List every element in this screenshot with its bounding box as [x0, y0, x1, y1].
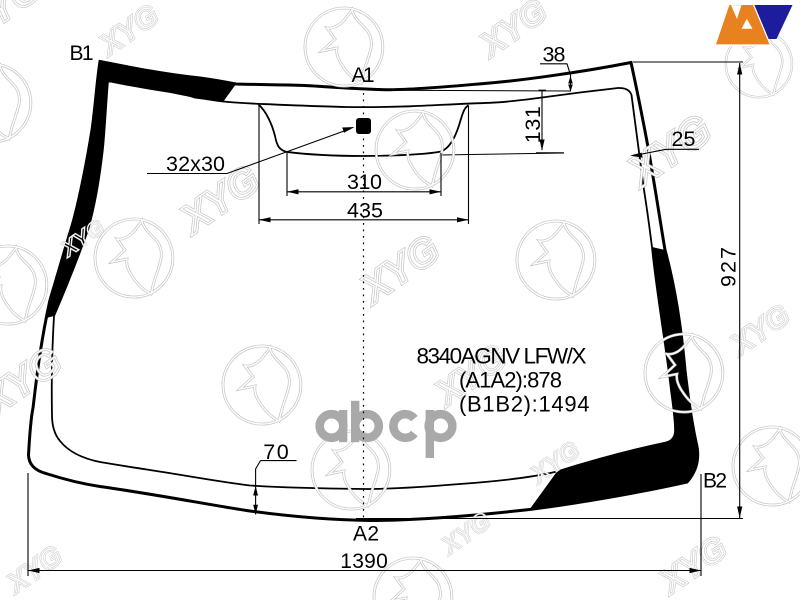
- svg-text:A2: A2: [353, 523, 379, 546]
- svg-text:310: 310: [347, 170, 382, 194]
- svg-text:(A1A2):878: (A1A2):878: [459, 368, 562, 393]
- svg-text:32x30: 32x30: [166, 152, 225, 176]
- svg-text:8340AGNV LFW/X: 8340AGNV LFW/X: [417, 344, 587, 369]
- svg-text:A1: A1: [352, 64, 375, 87]
- svg-text:38: 38: [543, 43, 566, 67]
- svg-text:(B1B2):1494: (B1B2):1494: [459, 392, 590, 417]
- svg-text:B1: B1: [70, 42, 94, 65]
- svg-text:131: 131: [521, 106, 545, 143]
- svg-text:B2: B2: [703, 470, 727, 493]
- svg-text:927: 927: [717, 247, 741, 287]
- svg-text:1390: 1390: [340, 550, 388, 573]
- svg-text:25: 25: [672, 127, 696, 151]
- svg-text:435: 435: [347, 199, 383, 223]
